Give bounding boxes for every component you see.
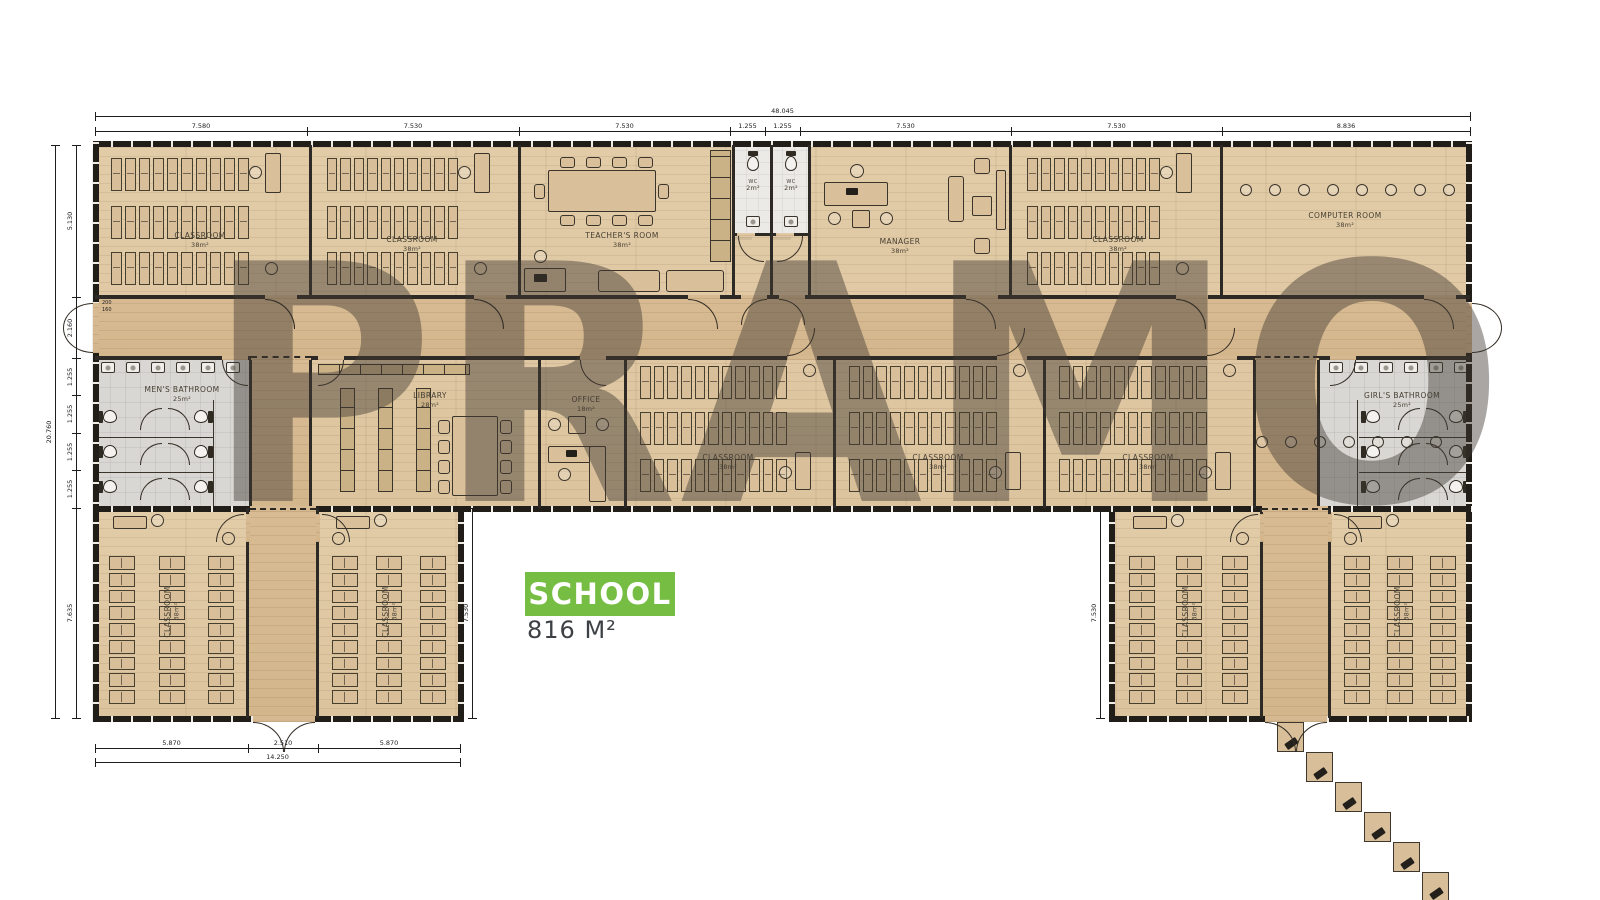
student-desk bbox=[125, 158, 136, 191]
chair-icon bbox=[1385, 184, 1397, 196]
student-desk bbox=[367, 206, 377, 239]
student-desk bbox=[376, 673, 402, 687]
room-name: MEN'S BATHROOM bbox=[144, 385, 219, 395]
computer-desk bbox=[1422, 872, 1449, 900]
trash-bin-icon bbox=[803, 364, 816, 377]
sink-icon bbox=[1404, 362, 1418, 373]
school-badge: SCHOOL bbox=[525, 572, 675, 616]
student-desk bbox=[376, 690, 402, 704]
student-desk bbox=[1054, 158, 1065, 191]
student-desk bbox=[1027, 206, 1038, 239]
dimension-tick bbox=[318, 744, 319, 753]
desk-column bbox=[109, 556, 135, 704]
student-desk bbox=[1086, 366, 1097, 399]
dimension-line bbox=[95, 131, 1470, 132]
sink-icon bbox=[1429, 362, 1443, 373]
student-desk bbox=[1344, 556, 1370, 570]
student-desk bbox=[918, 366, 929, 399]
room-label-classroom-3: CLASSROOM38m² bbox=[1092, 235, 1143, 253]
student-desk bbox=[394, 158, 404, 191]
student-desk bbox=[681, 366, 692, 399]
chair-icon bbox=[1314, 436, 1326, 448]
student-desk bbox=[332, 640, 358, 654]
stall-wall bbox=[1357, 400, 1358, 506]
dimension-tick bbox=[1096, 508, 1105, 509]
toilet-icon bbox=[1366, 480, 1380, 493]
chair-icon bbox=[1269, 184, 1281, 196]
desk-column bbox=[1430, 556, 1456, 704]
student-desk bbox=[776, 412, 787, 445]
office-desk bbox=[589, 446, 606, 502]
student-desk bbox=[1387, 673, 1413, 687]
room-area: 18m² bbox=[571, 405, 600, 413]
dimension-tick bbox=[1222, 127, 1223, 136]
room-wall bbox=[833, 358, 836, 508]
toilet-icon bbox=[1366, 410, 1380, 423]
student-desk bbox=[1430, 657, 1456, 671]
seat bbox=[638, 157, 653, 168]
room-wall bbox=[249, 358, 252, 508]
table bbox=[972, 196, 992, 216]
chair-icon bbox=[1199, 466, 1212, 479]
room-wall bbox=[1009, 145, 1012, 297]
student-desk bbox=[1081, 158, 1092, 191]
student-desk bbox=[407, 158, 417, 191]
room-wall bbox=[808, 145, 811, 297]
room-wall bbox=[1043, 358, 1046, 508]
table bbox=[452, 416, 498, 496]
seat bbox=[586, 215, 601, 226]
student-desk bbox=[890, 459, 901, 492]
stall-wall bbox=[97, 437, 213, 438]
sink-icon bbox=[1354, 362, 1368, 373]
student-desk bbox=[224, 158, 235, 191]
student-desk bbox=[421, 158, 431, 191]
student-desk bbox=[1081, 206, 1092, 239]
laptop-icon bbox=[566, 450, 577, 457]
student-desk bbox=[1129, 673, 1155, 687]
chair-icon bbox=[989, 466, 1002, 479]
student-desk bbox=[1430, 640, 1456, 654]
student-desk bbox=[1129, 556, 1155, 570]
chair-icon bbox=[850, 164, 864, 178]
table bbox=[1215, 452, 1231, 490]
student-desk bbox=[931, 366, 942, 399]
toilet-icon bbox=[1449, 480, 1463, 493]
door-gap bbox=[997, 356, 1027, 360]
entry-door-gap bbox=[1265, 716, 1327, 722]
door-dimension-label: 160 bbox=[102, 307, 112, 313]
toilet-icon bbox=[194, 480, 208, 493]
entry-door-arc bbox=[1472, 328, 1502, 353]
chair-icon bbox=[1414, 184, 1426, 196]
table bbox=[474, 153, 490, 193]
student-desk bbox=[1073, 366, 1084, 399]
student-desk bbox=[332, 573, 358, 587]
left-hall-floor bbox=[251, 358, 311, 508]
student-desk bbox=[153, 252, 164, 285]
student-desk bbox=[376, 657, 402, 671]
room-label-wing-classroom-3: CLASSROOM38m² bbox=[1181, 586, 1199, 637]
dimension-tick bbox=[800, 127, 801, 136]
student-desk bbox=[1183, 366, 1194, 399]
stall-wall bbox=[1359, 472, 1468, 473]
exterior-wall bbox=[1109, 506, 1115, 722]
student-desk bbox=[420, 690, 446, 704]
chair-icon bbox=[1327, 184, 1339, 196]
student-desk bbox=[376, 556, 402, 570]
room-name: CLASSROOM bbox=[163, 586, 173, 637]
student-desk bbox=[1149, 206, 1160, 239]
student-desk bbox=[159, 657, 185, 671]
student-desk bbox=[376, 640, 402, 654]
student-desk bbox=[1387, 657, 1413, 671]
student-desk bbox=[125, 206, 136, 239]
dimension-total-label: 20.760 bbox=[45, 420, 53, 443]
chair-icon bbox=[249, 166, 262, 179]
dimension-label: 8.836 bbox=[1337, 122, 1356, 130]
chair-icon bbox=[1171, 514, 1184, 527]
desk-row bbox=[1027, 158, 1160, 191]
student-desk bbox=[434, 158, 444, 191]
chair-icon bbox=[880, 212, 893, 225]
entry-door-gap bbox=[253, 716, 315, 722]
student-desk bbox=[1100, 366, 1111, 399]
student-desk bbox=[640, 412, 651, 445]
student-desk bbox=[1149, 252, 1160, 285]
student-desk bbox=[1222, 606, 1248, 620]
desk-row bbox=[1059, 366, 1207, 399]
student-desk bbox=[763, 459, 774, 492]
dimension-tick bbox=[460, 758, 461, 767]
student-desk bbox=[159, 690, 185, 704]
student-desk bbox=[153, 158, 164, 191]
armchair bbox=[974, 158, 990, 174]
student-desk bbox=[890, 366, 901, 399]
dimension-label: 1.255 bbox=[66, 367, 74, 386]
computer-desk bbox=[1393, 842, 1420, 872]
room-wall bbox=[1253, 358, 1256, 508]
sofa bbox=[598, 270, 660, 292]
dimension-total-label: 14.250 bbox=[266, 753, 289, 761]
room-label-classroom-5: CLASSROOM38m² bbox=[912, 453, 963, 471]
room-area: 38m² bbox=[174, 241, 225, 249]
student-desk bbox=[448, 252, 458, 285]
student-desk bbox=[1344, 590, 1370, 604]
dimension-label: 1.255 bbox=[738, 122, 757, 130]
student-desk bbox=[367, 252, 377, 285]
toilet-icon bbox=[1449, 410, 1463, 423]
student-desk bbox=[640, 366, 651, 399]
dimension-total-label: 48.045 bbox=[771, 107, 794, 115]
dimension-line bbox=[95, 748, 460, 749]
student-desk bbox=[1222, 657, 1248, 671]
dimension-label: 7.580 bbox=[192, 122, 211, 130]
room-wall bbox=[624, 358, 627, 508]
entry-door-gap bbox=[93, 303, 99, 353]
student-desk bbox=[1344, 690, 1370, 704]
room-area: 38m² bbox=[585, 241, 658, 249]
desk-row bbox=[640, 366, 787, 399]
student-desk bbox=[340, 252, 350, 285]
toilet-icon bbox=[194, 410, 208, 423]
room-wall bbox=[518, 145, 521, 297]
student-desk bbox=[1068, 158, 1079, 191]
seat bbox=[500, 460, 512, 474]
laptop-icon bbox=[846, 188, 858, 195]
student-desk bbox=[1041, 252, 1052, 285]
toilet-icon bbox=[103, 445, 117, 458]
student-desk bbox=[1122, 252, 1133, 285]
student-desk bbox=[1430, 673, 1456, 687]
student-desk bbox=[109, 623, 135, 637]
student-desk bbox=[695, 412, 706, 445]
student-desk bbox=[354, 252, 364, 285]
door-gap bbox=[1260, 514, 1264, 542]
table bbox=[568, 416, 586, 434]
student-desk bbox=[959, 412, 970, 445]
chair-icon bbox=[534, 250, 547, 263]
student-desk bbox=[654, 412, 665, 445]
student-desk bbox=[208, 690, 234, 704]
student-desk bbox=[876, 366, 887, 399]
right-hall-floor bbox=[1255, 358, 1319, 508]
chair-icon bbox=[548, 418, 561, 431]
dimension-label: 7.635 bbox=[66, 604, 74, 623]
dimension-label: 5.870 bbox=[380, 739, 399, 747]
door-gap bbox=[316, 514, 320, 542]
student-desk bbox=[1430, 556, 1456, 570]
room-name: OFFICE bbox=[571, 395, 600, 405]
student-desk bbox=[327, 206, 337, 239]
door-gap bbox=[1207, 356, 1237, 360]
dimension-tick bbox=[51, 145, 60, 146]
room-label-teachers-room: TEACHER'S ROOM38m² bbox=[585, 231, 658, 249]
student-desk bbox=[448, 206, 458, 239]
computer-icon bbox=[1371, 827, 1386, 840]
room-label-wc-2: WC2m² bbox=[784, 179, 798, 193]
student-desk bbox=[354, 158, 364, 191]
student-desk bbox=[959, 366, 970, 399]
dimension-tick bbox=[72, 145, 81, 146]
dimension-tick bbox=[95, 744, 96, 753]
seat bbox=[500, 420, 512, 434]
student-desk bbox=[111, 206, 122, 239]
student-desk bbox=[1128, 412, 1139, 445]
student-desk bbox=[1169, 412, 1180, 445]
dimension-tick bbox=[307, 127, 308, 136]
student-desk bbox=[667, 459, 678, 492]
dimension-tick bbox=[468, 508, 477, 509]
student-desk bbox=[159, 573, 185, 587]
student-desk bbox=[1114, 366, 1125, 399]
dimension-label: 1.255 bbox=[66, 442, 74, 461]
dimension-label: 1.255 bbox=[66, 405, 74, 424]
student-desk bbox=[904, 366, 915, 399]
student-desk bbox=[1054, 206, 1065, 239]
student-desk bbox=[1387, 573, 1413, 587]
student-desk bbox=[1176, 640, 1202, 654]
room-label-wc-1: WC2m² bbox=[746, 179, 760, 193]
student-desk bbox=[1196, 412, 1207, 445]
seat bbox=[438, 480, 450, 494]
student-desk bbox=[1149, 158, 1160, 191]
student-desk bbox=[1430, 623, 1456, 637]
student-desk bbox=[332, 606, 358, 620]
dimension-tick bbox=[765, 127, 766, 136]
desk-row bbox=[1059, 412, 1207, 445]
room-name: COMPUTER ROOM bbox=[1308, 211, 1381, 221]
student-desk bbox=[109, 606, 135, 620]
dimension-tick bbox=[95, 112, 96, 121]
room-wall bbox=[1220, 145, 1223, 297]
desk-row bbox=[111, 252, 249, 285]
student-desk bbox=[708, 412, 719, 445]
student-desk bbox=[111, 252, 122, 285]
student-desk bbox=[1176, 556, 1202, 570]
seat bbox=[586, 157, 601, 168]
student-desk bbox=[139, 158, 150, 191]
desk-column bbox=[208, 556, 234, 704]
student-desk bbox=[340, 206, 350, 239]
student-desk bbox=[1041, 158, 1052, 191]
student-desk bbox=[749, 366, 760, 399]
student-desk bbox=[434, 252, 444, 285]
room-label-manager: MANAGER38m² bbox=[880, 237, 921, 255]
student-desk bbox=[1129, 690, 1155, 704]
student-desk bbox=[354, 206, 364, 239]
student-desk bbox=[381, 252, 391, 285]
seat bbox=[658, 184, 669, 199]
sink-icon bbox=[746, 216, 760, 227]
table bbox=[1176, 153, 1192, 193]
bookshelf bbox=[710, 150, 731, 262]
room-label-wing-classroom-2: CLASSROOM38m² bbox=[381, 586, 399, 637]
student-desk bbox=[1129, 606, 1155, 620]
hall-dash bbox=[1255, 356, 1319, 358]
room-name: CLASSROOM bbox=[702, 453, 753, 463]
student-desk bbox=[849, 366, 860, 399]
room-name: CLASSROOM bbox=[1092, 235, 1143, 245]
student-desk bbox=[931, 412, 942, 445]
student-desk bbox=[332, 556, 358, 570]
student-desk bbox=[849, 459, 860, 492]
desk-column bbox=[420, 556, 446, 704]
student-desk bbox=[159, 640, 185, 654]
student-desk bbox=[763, 366, 774, 399]
chair-icon bbox=[1298, 184, 1310, 196]
room-wall bbox=[309, 145, 312, 297]
room-name: CLASSROOM bbox=[1181, 586, 1191, 637]
room-area: 25m² bbox=[144, 395, 219, 403]
dimension-label: 5.130 bbox=[66, 212, 74, 231]
student-desk bbox=[1100, 459, 1111, 492]
student-desk bbox=[420, 673, 446, 687]
student-desk bbox=[1344, 657, 1370, 671]
room-area: 38m² bbox=[173, 586, 181, 637]
dimension-tick bbox=[72, 470, 81, 471]
total-area-label: 816 M² bbox=[527, 616, 617, 644]
student-desk bbox=[109, 640, 135, 654]
chair-icon bbox=[1443, 184, 1455, 196]
table bbox=[1133, 516, 1167, 529]
student-desk bbox=[208, 590, 234, 604]
student-desk bbox=[109, 556, 135, 570]
student-desk bbox=[1430, 690, 1456, 704]
dimension-tick bbox=[72, 358, 81, 359]
student-desk bbox=[904, 412, 915, 445]
desk-row bbox=[849, 412, 997, 445]
student-desk bbox=[863, 412, 874, 445]
student-desk bbox=[109, 673, 135, 687]
toilet-icon bbox=[1366, 445, 1380, 458]
student-desk bbox=[238, 206, 249, 239]
student-desk bbox=[420, 606, 446, 620]
student-desk bbox=[1155, 366, 1166, 399]
student-desk bbox=[973, 459, 984, 492]
room-wall bbox=[732, 145, 735, 297]
student-desk bbox=[1344, 673, 1370, 687]
dimension-tick bbox=[72, 718, 81, 719]
student-desk bbox=[1054, 252, 1065, 285]
student-desk bbox=[421, 252, 431, 285]
student-desk bbox=[1136, 158, 1147, 191]
student-desk bbox=[332, 657, 358, 671]
student-desk bbox=[167, 252, 178, 285]
student-desk bbox=[111, 158, 122, 191]
student-desk bbox=[1183, 412, 1194, 445]
student-desk bbox=[367, 158, 377, 191]
dimension-line bbox=[472, 508, 473, 718]
student-desk bbox=[181, 158, 192, 191]
bookshelf bbox=[378, 388, 393, 492]
dimension-label: 5.870 bbox=[162, 739, 181, 747]
student-desk bbox=[332, 623, 358, 637]
right-wing-hall-floor bbox=[1262, 508, 1330, 716]
toilet-icon bbox=[103, 410, 117, 423]
dimension-line bbox=[55, 145, 56, 718]
seat bbox=[500, 440, 512, 454]
student-desk bbox=[1176, 657, 1202, 671]
student-desk bbox=[420, 590, 446, 604]
dimension-tick bbox=[72, 395, 81, 396]
student-desk bbox=[918, 412, 929, 445]
dimension-tick bbox=[460, 744, 461, 753]
student-desk bbox=[749, 412, 760, 445]
table bbox=[795, 452, 811, 490]
student-desk bbox=[681, 459, 692, 492]
student-desk bbox=[181, 252, 192, 285]
sofa bbox=[948, 176, 964, 222]
armchair bbox=[974, 238, 990, 254]
chair-icon bbox=[1160, 166, 1173, 179]
student-desk bbox=[332, 690, 358, 704]
student-desk bbox=[640, 459, 651, 492]
student-desk bbox=[210, 158, 221, 191]
seat bbox=[438, 440, 450, 454]
student-desk bbox=[1129, 623, 1155, 637]
desk-row bbox=[640, 412, 787, 445]
student-desk bbox=[986, 366, 997, 399]
dimension-tick bbox=[1011, 127, 1012, 136]
student-desk bbox=[1387, 640, 1413, 654]
student-desk bbox=[1222, 590, 1248, 604]
school-floor-plan: PRAMO SCHOOL 816 M² CLASSROOM38m²CLASSRO… bbox=[0, 0, 1600, 900]
left-wing-hall-floor bbox=[248, 508, 318, 716]
student-desk bbox=[1027, 252, 1038, 285]
dimension-tick bbox=[730, 127, 731, 136]
seat bbox=[500, 480, 512, 494]
